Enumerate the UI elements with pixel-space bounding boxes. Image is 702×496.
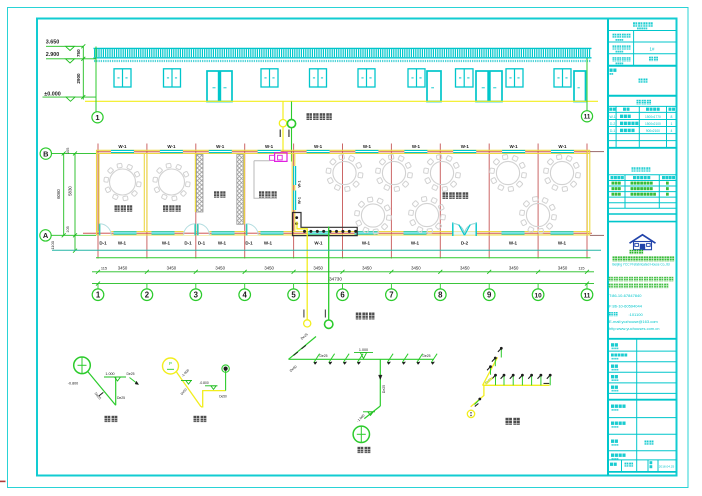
svg-text:E-mail:yczhouse@163.com: E-mail:yczhouse@163.com bbox=[609, 319, 658, 324]
svg-text:900x2100: 900x2100 bbox=[646, 129, 660, 133]
svg-text:5830: 5830 bbox=[67, 186, 72, 196]
svg-text:105: 105 bbox=[66, 148, 70, 154]
svg-text:D-1: D-1 bbox=[99, 241, 107, 246]
svg-text:3450: 3450 bbox=[118, 265, 128, 270]
svg-text:115: 115 bbox=[101, 265, 107, 270]
svg-text:-0.800: -0.800 bbox=[199, 381, 209, 385]
svg-text:1100: 1100 bbox=[50, 240, 55, 249]
svg-text:3450: 3450 bbox=[362, 265, 372, 270]
svg-text:W-1: W-1 bbox=[118, 144, 127, 149]
svg-text:W-1: W-1 bbox=[298, 181, 302, 188]
svg-text:3450: 3450 bbox=[558, 265, 568, 270]
svg-text:4: 4 bbox=[671, 129, 673, 133]
svg-text:-0.800: -0.800 bbox=[68, 381, 78, 385]
svg-text:2.900: 2.900 bbox=[46, 52, 60, 58]
svg-text:W-1: W-1 bbox=[610, 115, 616, 119]
svg-text:W-1: W-1 bbox=[314, 241, 323, 246]
svg-text:D-1: D-1 bbox=[184, 241, 192, 246]
svg-text:W-1: W-1 bbox=[362, 241, 371, 246]
svg-text:De25: De25 bbox=[126, 372, 134, 376]
svg-text:3450: 3450 bbox=[167, 265, 177, 270]
svg-text:3450: 3450 bbox=[215, 265, 225, 270]
svg-text:10: 10 bbox=[535, 293, 543, 300]
svg-text:W-1: W-1 bbox=[216, 144, 225, 149]
svg-text:W-1: W-1 bbox=[162, 241, 171, 246]
svg-text:W-1: W-1 bbox=[461, 144, 470, 149]
svg-text:P: P bbox=[169, 361, 172, 366]
svg-text:3450: 3450 bbox=[509, 265, 519, 270]
svg-text:3450: 3450 bbox=[313, 265, 323, 270]
svg-text:F:86-10-60594044: F:86-10-60594044 bbox=[609, 304, 643, 309]
svg-text:2900: 2900 bbox=[76, 73, 81, 84]
svg-text:3450: 3450 bbox=[411, 265, 421, 270]
svg-text:9: 9 bbox=[487, 291, 492, 300]
svg-text:B: B bbox=[43, 149, 48, 158]
svg-text:1: 1 bbox=[96, 291, 101, 300]
svg-text:1.000: 1.000 bbox=[105, 372, 114, 376]
svg-text:Beijing YCC Prefabricated Hous: Beijing YCC Prefabricated House Co.,ltd bbox=[612, 262, 669, 266]
svg-text:1500x1770: 1500x1770 bbox=[645, 115, 661, 119]
svg-text:1: 1 bbox=[671, 122, 673, 126]
svg-text:W-1: W-1 bbox=[509, 241, 518, 246]
svg-text:W-1: W-1 bbox=[218, 241, 227, 246]
svg-text:5: 5 bbox=[291, 291, 296, 300]
svg-text:3: 3 bbox=[194, 291, 199, 300]
svg-text:1500x2100: 1500x2100 bbox=[645, 122, 661, 126]
svg-text:3450: 3450 bbox=[264, 265, 274, 270]
svg-text:6060: 6060 bbox=[56, 189, 61, 199]
svg-text:De50: De50 bbox=[219, 395, 227, 399]
svg-text:D-1: D-1 bbox=[245, 241, 253, 246]
svg-text:11: 11 bbox=[584, 293, 591, 300]
svg-text:8: 8 bbox=[438, 291, 443, 300]
svg-text:De25: De25 bbox=[319, 354, 327, 358]
svg-text:De25: De25 bbox=[422, 354, 430, 358]
svg-text:105: 105 bbox=[66, 226, 70, 232]
svg-text:W-1: W-1 bbox=[411, 241, 420, 246]
svg-text:115: 115 bbox=[578, 265, 584, 270]
svg-text:D-1: D-1 bbox=[198, 241, 206, 246]
svg-text:W-1: W-1 bbox=[363, 144, 372, 149]
svg-text:2018.04.25: 2018.04.25 bbox=[659, 464, 675, 468]
svg-text:7: 7 bbox=[389, 291, 393, 300]
svg-text:2: 2 bbox=[145, 291, 150, 300]
svg-text:4: 4 bbox=[243, 291, 248, 300]
svg-text:http:www.yuchouses.com.cn: http:www.yuchouses.com.cn bbox=[609, 326, 659, 331]
svg-text:34730: 34730 bbox=[329, 276, 342, 281]
svg-text:1.000: 1.000 bbox=[359, 348, 368, 352]
svg-text:W-1: W-1 bbox=[298, 197, 302, 204]
svg-text:D-2: D-2 bbox=[461, 241, 469, 246]
svg-text:W-1: W-1 bbox=[264, 241, 273, 246]
svg-text:3.650: 3.650 bbox=[46, 40, 60, 46]
svg-text:3450: 3450 bbox=[460, 265, 470, 270]
svg-text:T:86-10-67847840: T:86-10-67847840 bbox=[609, 293, 642, 298]
svg-text:D-2: D-2 bbox=[610, 122, 616, 126]
svg-text:±0.000: ±0.000 bbox=[44, 91, 60, 97]
svg-text:W-1: W-1 bbox=[167, 144, 176, 149]
svg-text::101100: :101100 bbox=[629, 312, 644, 317]
svg-text:W-1: W-1 bbox=[558, 241, 567, 246]
svg-text:D-1: D-1 bbox=[610, 129, 616, 133]
svg-text:De25: De25 bbox=[117, 396, 125, 400]
svg-text:11: 11 bbox=[584, 114, 591, 121]
svg-text:8: 8 bbox=[671, 115, 673, 119]
svg-text:6: 6 bbox=[340, 291, 345, 300]
svg-text:1#: 1# bbox=[650, 47, 655, 52]
svg-text:750: 750 bbox=[76, 49, 81, 57]
svg-text:W-1: W-1 bbox=[558, 144, 567, 149]
svg-text:A: A bbox=[43, 231, 49, 240]
svg-text:W-1: W-1 bbox=[412, 144, 421, 149]
svg-text:W-1: W-1 bbox=[265, 144, 274, 149]
svg-text:W-1: W-1 bbox=[314, 144, 323, 149]
svg-text:W-1: W-1 bbox=[118, 241, 127, 246]
svg-text:W-1: W-1 bbox=[510, 144, 519, 149]
svg-text:De25: De25 bbox=[382, 385, 386, 393]
